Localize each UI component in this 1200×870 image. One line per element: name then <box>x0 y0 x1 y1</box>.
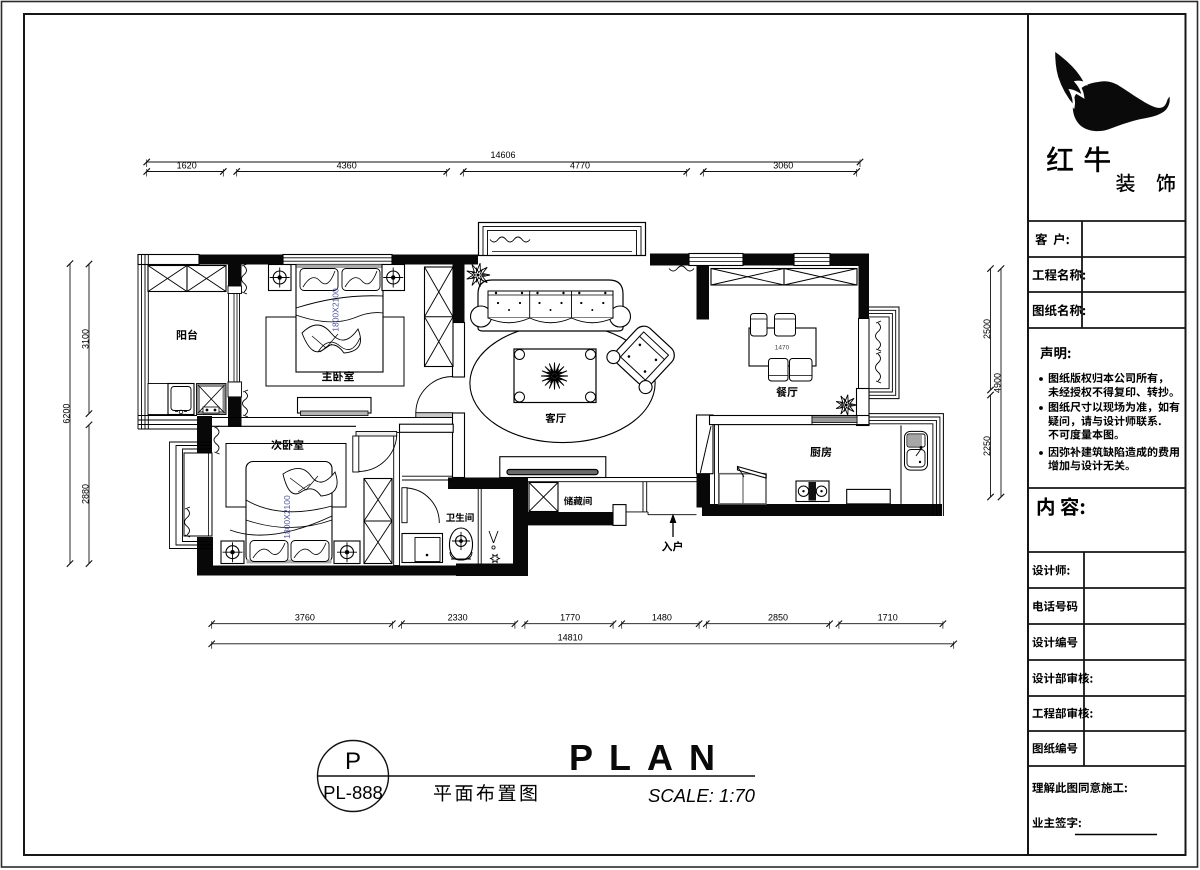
svg-text:PL-888: PL-888 <box>323 782 383 803</box>
svg-text:PLAN: PLAN <box>569 737 731 778</box>
svg-text:1480: 1480 <box>652 612 672 622</box>
svg-text:1620: 1620 <box>177 161 197 171</box>
svg-text:2500: 2500 <box>982 319 992 339</box>
svg-text:P: P <box>345 748 361 775</box>
svg-text:1800X2100: 1800X2100 <box>282 495 292 539</box>
svg-text:2880: 2880 <box>81 484 91 504</box>
svg-text:1800X2100: 1800X2100 <box>331 288 341 332</box>
svg-text:1710: 1710 <box>878 612 898 622</box>
svg-text:3760: 3760 <box>295 612 315 622</box>
svg-text:3100: 3100 <box>81 329 91 349</box>
svg-text:2250: 2250 <box>982 436 992 456</box>
svg-text:1470: 1470 <box>775 345 790 352</box>
svg-text:6200: 6200 <box>62 404 72 424</box>
svg-text:1770: 1770 <box>560 612 580 622</box>
svg-text:3060: 3060 <box>773 161 793 171</box>
svg-text:4770: 4770 <box>570 161 590 171</box>
svg-text:2850: 2850 <box>768 612 788 622</box>
svg-text:SCALE: 1:70: SCALE: 1:70 <box>648 785 756 806</box>
svg-text:2330: 2330 <box>448 612 468 622</box>
svg-text:4360: 4360 <box>337 161 357 171</box>
svg-text:4900: 4900 <box>993 373 1003 393</box>
svg-text:14810: 14810 <box>558 633 583 643</box>
svg-text:14606: 14606 <box>490 150 515 160</box>
